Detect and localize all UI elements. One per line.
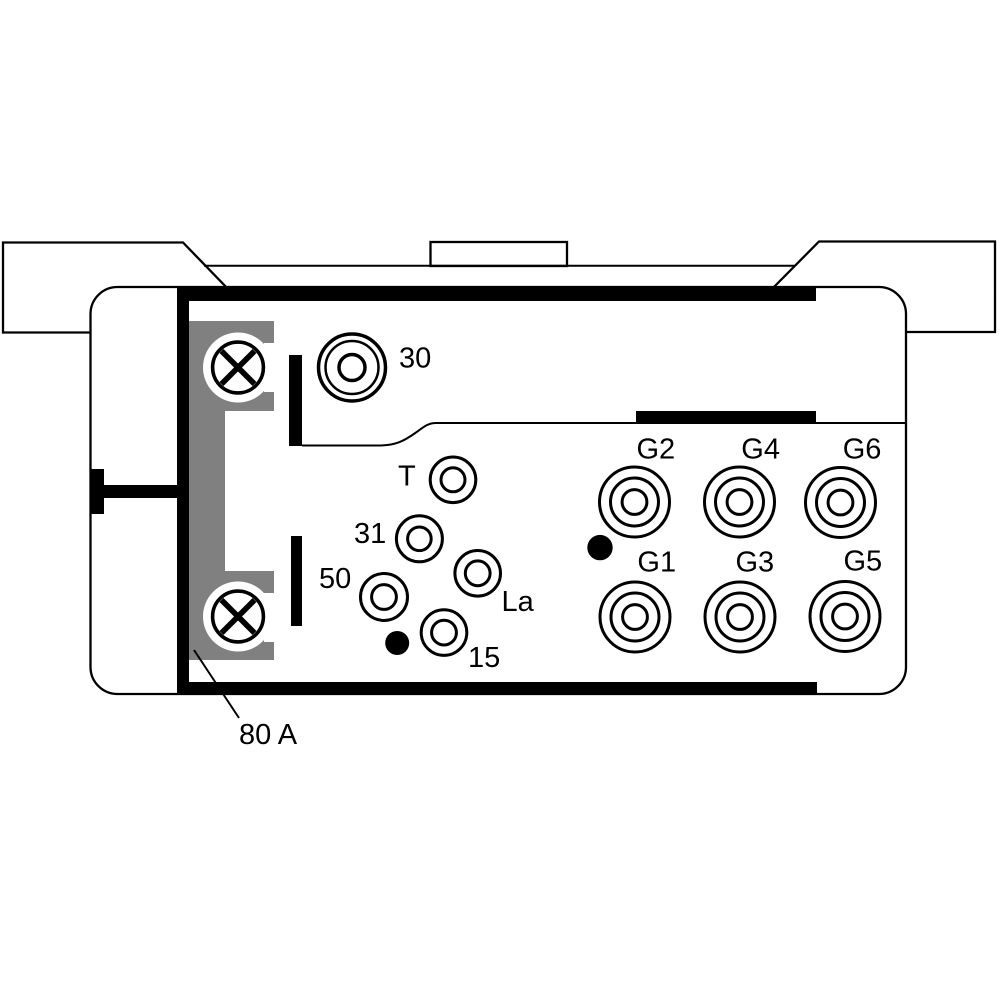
svg-text:50: 50 [319, 563, 351, 595]
svg-text:G2: G2 [637, 434, 676, 466]
svg-text:La: La [502, 586, 535, 618]
svg-text:G1: G1 [637, 546, 676, 578]
svg-text:T: T [398, 461, 416, 493]
svg-text:31: 31 [354, 518, 386, 550]
svg-text:G6: G6 [843, 434, 882, 466]
svg-text:G5: G5 [844, 546, 883, 578]
svg-text:G3: G3 [736, 546, 775, 578]
svg-text:80 A: 80 A [239, 719, 298, 751]
svg-text:15: 15 [468, 642, 500, 674]
svg-text:30: 30 [399, 343, 431, 375]
svg-text:G4: G4 [741, 434, 780, 466]
